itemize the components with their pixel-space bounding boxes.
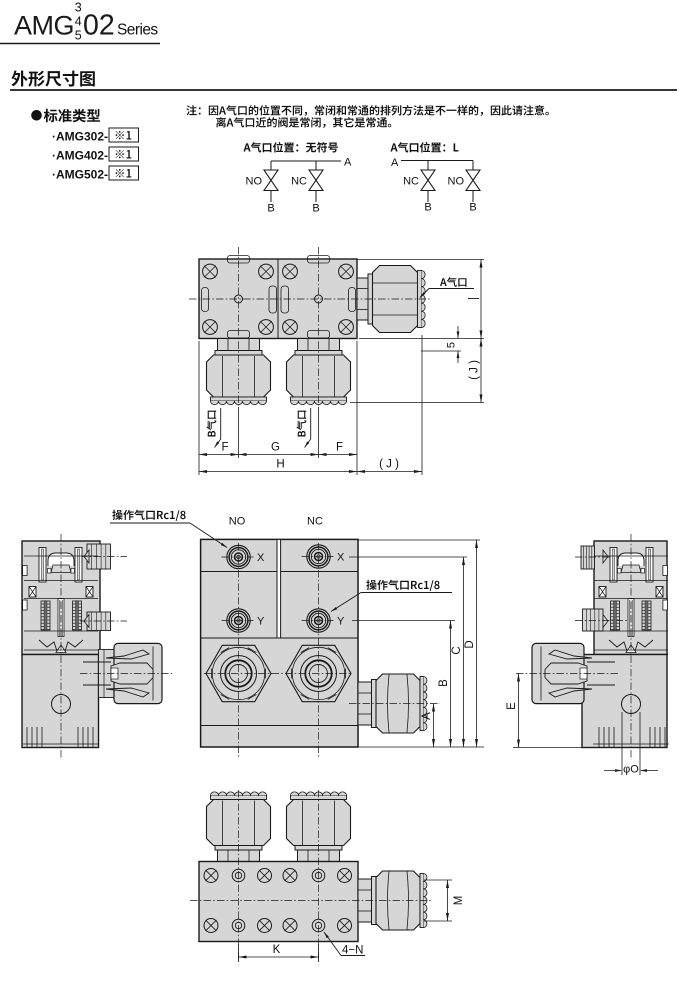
svg-text:02: 02 [83, 10, 115, 42]
svg-text:G: G [271, 442, 280, 454]
svg-text:·AMG402-: ·AMG402- [52, 149, 108, 163]
svg-text:NO: NO [448, 176, 465, 188]
svg-text:Y: Y [257, 616, 265, 628]
svg-text:·AMG502-: ·AMG502- [52, 168, 108, 182]
svg-text:NC: NC [291, 176, 307, 188]
svg-text:NC: NC [403, 176, 419, 188]
svg-text:X: X [337, 552, 345, 564]
svg-text:X: X [257, 552, 265, 564]
svg-text:F: F [336, 442, 343, 454]
svg-text:K: K [273, 944, 281, 956]
svg-text:Y: Y [337, 616, 345, 628]
svg-text:A: A [344, 157, 352, 169]
svg-text:M: M [453, 896, 465, 906]
svg-text:Series: Series [117, 22, 158, 39]
svg-text:C: C [451, 646, 463, 654]
svg-text:B: B [469, 202, 476, 214]
svg-text:φO: φO [623, 764, 639, 776]
svg-text:B: B [267, 203, 274, 215]
svg-text:5: 5 [75, 29, 82, 43]
svg-text:H: H [276, 459, 284, 471]
svg-text:AMG: AMG [14, 11, 74, 41]
svg-text:A: A [421, 712, 433, 720]
svg-text:3: 3 [75, 1, 82, 15]
svg-text:( J ): ( J ) [379, 459, 399, 471]
svg-text:B: B [424, 202, 431, 214]
svg-text:5: 5 [446, 342, 458, 348]
svg-text:F: F [221, 442, 228, 454]
svg-text:NO: NO [229, 516, 246, 528]
svg-text:4: 4 [75, 15, 82, 29]
svg-text:4−N: 4−N [342, 945, 363, 957]
svg-text:E: E [506, 702, 518, 710]
svg-text:NO: NO [246, 176, 263, 188]
svg-text:( J ): ( J ) [469, 360, 481, 380]
svg-text:D: D [464, 640, 476, 648]
svg-text:B: B [438, 679, 450, 687]
svg-text:A: A [391, 157, 399, 169]
svg-text:NC: NC [307, 516, 323, 528]
svg-text:B: B [312, 203, 319, 215]
svg-text:·AMG302-: ·AMG302- [52, 130, 108, 144]
